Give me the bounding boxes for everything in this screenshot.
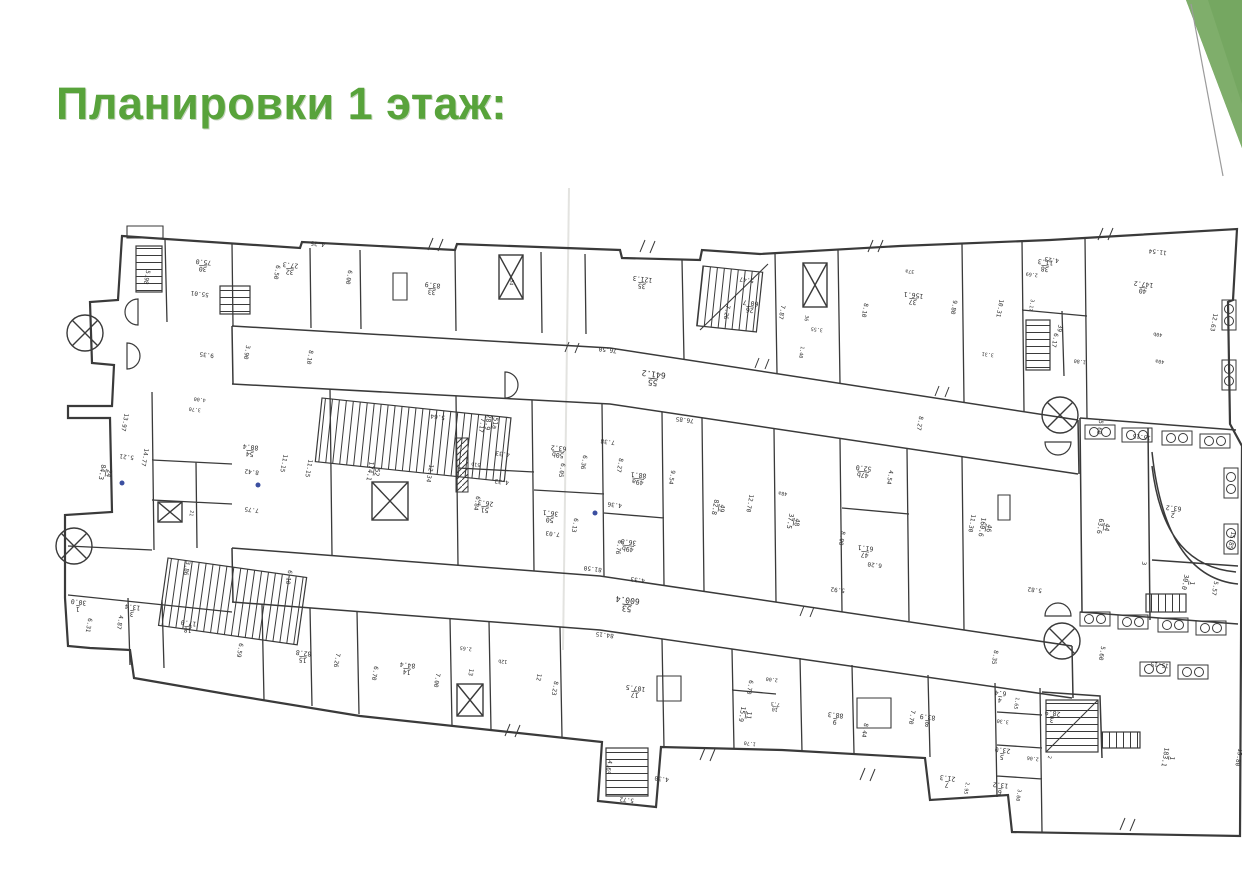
survey-dot xyxy=(120,481,125,486)
dimension-label: 5.92 xyxy=(830,585,846,594)
room-label: 5480.4 xyxy=(241,442,258,459)
stair-run-spiral-base xyxy=(1146,594,1186,612)
dimension-label: 4.54 xyxy=(885,470,894,486)
elevator-shaft-icon xyxy=(803,263,827,307)
dimension-label: 6.59 xyxy=(235,643,244,659)
dimension-label: 4.33 xyxy=(630,575,646,584)
dimension-label: 4.30 xyxy=(654,774,670,783)
dimension-label: 6.70 xyxy=(745,680,754,696)
dimension-label: 1.80 xyxy=(1074,357,1087,364)
room-label: 721.3 xyxy=(938,773,955,790)
dimension-label: 12 xyxy=(534,673,542,682)
dimension-label: 1.70 xyxy=(744,739,757,746)
dimension-label: 5.21 xyxy=(119,452,135,461)
dimension-label: 14.77 xyxy=(139,448,149,467)
dimension-label: 11.15 xyxy=(303,459,313,478)
dimension-label: 6.50 xyxy=(272,265,281,281)
dimension-label: 8.27 xyxy=(915,416,924,432)
dimension-label: 13 xyxy=(466,668,474,677)
dimension-label: 3.70 xyxy=(189,405,202,412)
dimension-label: 3.90 xyxy=(242,345,251,361)
dimension-label: 7.00 xyxy=(432,673,441,689)
dimension-label: 11.30 xyxy=(966,514,976,533)
dimension-label: 9.54 xyxy=(667,470,676,486)
room-label: 313.4 xyxy=(123,602,140,619)
room-label: 4761.1 xyxy=(856,543,873,560)
dimension-label: 55.01 xyxy=(190,289,209,298)
room-label: 3383.9 xyxy=(423,280,440,297)
dimension-label: 2.95 xyxy=(962,782,970,795)
room-label: 1817.0 xyxy=(179,618,196,635)
dimension-label: 11.15 xyxy=(278,454,288,473)
dimension-label: 8.42 xyxy=(244,467,260,476)
dimension-label: 8.27 xyxy=(615,458,624,474)
stair-run-south xyxy=(606,748,648,796)
dimension-label: 6.17 xyxy=(1050,333,1059,349)
stair-run-room1 xyxy=(1102,732,1140,748)
dimension-label: 6.05 xyxy=(557,463,566,479)
room-label: 4982.8 xyxy=(710,499,728,517)
dimension-label: 76.50 xyxy=(598,345,617,354)
room-label: 46160.6 xyxy=(976,517,994,539)
room-label: 3075.0 xyxy=(195,257,212,274)
room-label: 1115.9 xyxy=(737,706,755,724)
room-label: 130.0 xyxy=(1180,574,1198,592)
dimension-label: 21 xyxy=(188,510,195,517)
room-label: 107.3 xyxy=(770,700,780,713)
half-column-icon xyxy=(1045,442,1071,455)
stair-run-west xyxy=(159,558,307,645)
stair-run-north xyxy=(697,266,763,332)
room-label: 1183.1 xyxy=(1159,747,1177,769)
column-axis-icon xyxy=(67,315,103,351)
room-label: 37156.1 xyxy=(902,290,923,307)
dimension-label: 4.00 xyxy=(194,395,207,402)
dimension-label: 40a xyxy=(1155,357,1165,364)
top-band-partitions xyxy=(165,238,1087,418)
room-label: 263.2 xyxy=(1164,503,1181,520)
dimension-label: 3.31 xyxy=(982,350,995,357)
room-label: 1582.8 xyxy=(294,648,311,665)
dimension-label: 11.54 xyxy=(1148,247,1167,256)
dimension-label: 2 xyxy=(1046,755,1052,759)
dimension-label: 6.10 xyxy=(284,570,293,586)
dimension-label: 6.20 xyxy=(867,560,883,569)
dimension-label: 6.13 xyxy=(570,518,579,534)
dimension-label: 6.31 xyxy=(84,618,93,634)
dimension-label: 1.65 xyxy=(1012,697,1020,710)
dimension-label: 15.15 xyxy=(1150,660,1169,669)
dimension-label: 15.80 xyxy=(1233,748,1242,767)
dimension-label: 2.69 xyxy=(1026,270,1039,277)
room-label: 50b63.2 xyxy=(549,443,566,460)
dimension-label: 7.70 xyxy=(907,710,916,726)
dimension-label: 4.65 xyxy=(604,760,613,776)
dimension-label: 5.60 xyxy=(1097,646,1106,662)
dimension-label: 40b xyxy=(1153,330,1163,337)
dimension-label: 7.03 xyxy=(545,529,561,538)
elevator-shaft-icon xyxy=(499,255,523,299)
dimension-label: 6.84 xyxy=(472,496,481,512)
room-label: 988.3 xyxy=(826,710,843,727)
dimension-label: 9.80 xyxy=(949,300,958,316)
dimension-label: 7.87 xyxy=(777,305,786,321)
dimension-label: 6.70 xyxy=(370,666,379,682)
dimension-label: 5.60 xyxy=(1095,420,1104,436)
hatched-wall xyxy=(456,438,468,492)
dimension-label: 1.40 xyxy=(797,346,805,359)
room-label: 5036.1 xyxy=(541,508,558,525)
survey-dot xyxy=(256,483,261,488)
dimension-label: 3 xyxy=(1140,561,1148,566)
elevator-shaft-icon xyxy=(158,502,182,522)
room-label: 130.0 xyxy=(69,597,86,614)
dimension-label: 5.57 xyxy=(1210,581,1219,597)
dimension-label: 34 xyxy=(508,279,515,286)
dimension-label: 6.36 xyxy=(579,455,588,471)
dimension-label: 8.23 xyxy=(550,681,559,697)
dimension-label: 6.76 xyxy=(614,540,623,556)
dimension-label: 2.65 xyxy=(460,644,473,651)
dimension-label: 7.26 xyxy=(332,653,341,669)
dimension-label: 8.44 xyxy=(860,723,869,739)
room-label: 53600.4 xyxy=(614,594,640,614)
dimension-label: 39 xyxy=(1055,324,1063,333)
dimension-label: 2.06 xyxy=(1027,754,1040,761)
dimension-label: 3.30 xyxy=(997,717,1010,724)
dimension-label: 2.00 xyxy=(766,675,779,682)
room-label: 4463.6 xyxy=(1095,518,1113,536)
dimension-label: 8.10 xyxy=(860,303,869,319)
dimension-label: 13.97 xyxy=(119,413,129,432)
dimension-label: 8.10 xyxy=(305,350,314,366)
dimension-label: 5.82 xyxy=(1027,585,1043,594)
dimension-label: 48a xyxy=(778,489,788,496)
room-label: 883.9 xyxy=(918,712,935,729)
stair-run-northwest-2 xyxy=(220,286,250,314)
room-label: 40147.2 xyxy=(1132,279,1153,296)
elevator-shaft-icon xyxy=(372,482,408,520)
dimension-label: 3.55 xyxy=(811,325,824,332)
stair-run-main xyxy=(315,398,511,482)
dimension-label: 7.38 xyxy=(600,437,616,446)
dimension-label: 4.25 xyxy=(310,239,326,248)
room-label: 47b52.0 xyxy=(854,463,871,480)
floor-plan: 3075.03227.33383.93435121.32660.737a3715… xyxy=(0,0,1242,884)
column-axis-icon xyxy=(1044,623,1080,659)
room-label: 4837.5 xyxy=(785,513,803,531)
stair-run-northwest xyxy=(136,246,162,292)
dimension-label: 6.00 xyxy=(344,270,353,286)
dimension-label: 12b xyxy=(498,657,508,664)
dimension-label: 7.75 xyxy=(244,505,260,514)
half-column-icon xyxy=(127,343,140,369)
dimension-label: 8.00 xyxy=(837,531,846,547)
half-column-icon xyxy=(125,299,138,325)
survey-dot xyxy=(593,511,598,516)
dimension-label: 3.00 xyxy=(1014,789,1022,802)
dimension-label: 8.35 xyxy=(990,650,999,666)
scan-fold-line xyxy=(563,188,569,650)
dimension-label: 10.31 xyxy=(994,299,1004,318)
dimension-label: 12.70 xyxy=(744,494,754,513)
dimension-label: 37a xyxy=(905,267,915,274)
dimension-label: 3.17 xyxy=(1027,299,1035,312)
room-label: 17107.5 xyxy=(624,683,645,700)
dimension-label: 12.63 xyxy=(1208,313,1218,332)
dimension-label: 4.87 xyxy=(115,615,124,631)
dimension-label: 4.23 xyxy=(1044,255,1060,264)
dimension-label: 81.50 xyxy=(583,564,602,573)
dimension-label: 9.35 xyxy=(199,350,215,359)
room-label: 3227.3 xyxy=(282,260,299,277)
column-axis-icon xyxy=(56,528,92,564)
room-label: 1484.4 xyxy=(398,660,415,677)
elevator-shaft-icon xyxy=(457,684,483,716)
dimension-label: 51b xyxy=(471,460,481,467)
dimension-label: 4.32 xyxy=(494,477,510,486)
stair-run-room39 xyxy=(1026,320,1050,370)
dimension-label: 4.36 xyxy=(607,500,623,509)
half-column-icon xyxy=(1045,603,1071,616)
room-label: 35121.3 xyxy=(631,274,652,291)
dimension-label: 36 xyxy=(803,315,810,322)
door-swing-icon xyxy=(505,372,518,398)
room-label: 55641.2 xyxy=(640,368,666,388)
room-label: 49a88.1 xyxy=(629,470,646,487)
